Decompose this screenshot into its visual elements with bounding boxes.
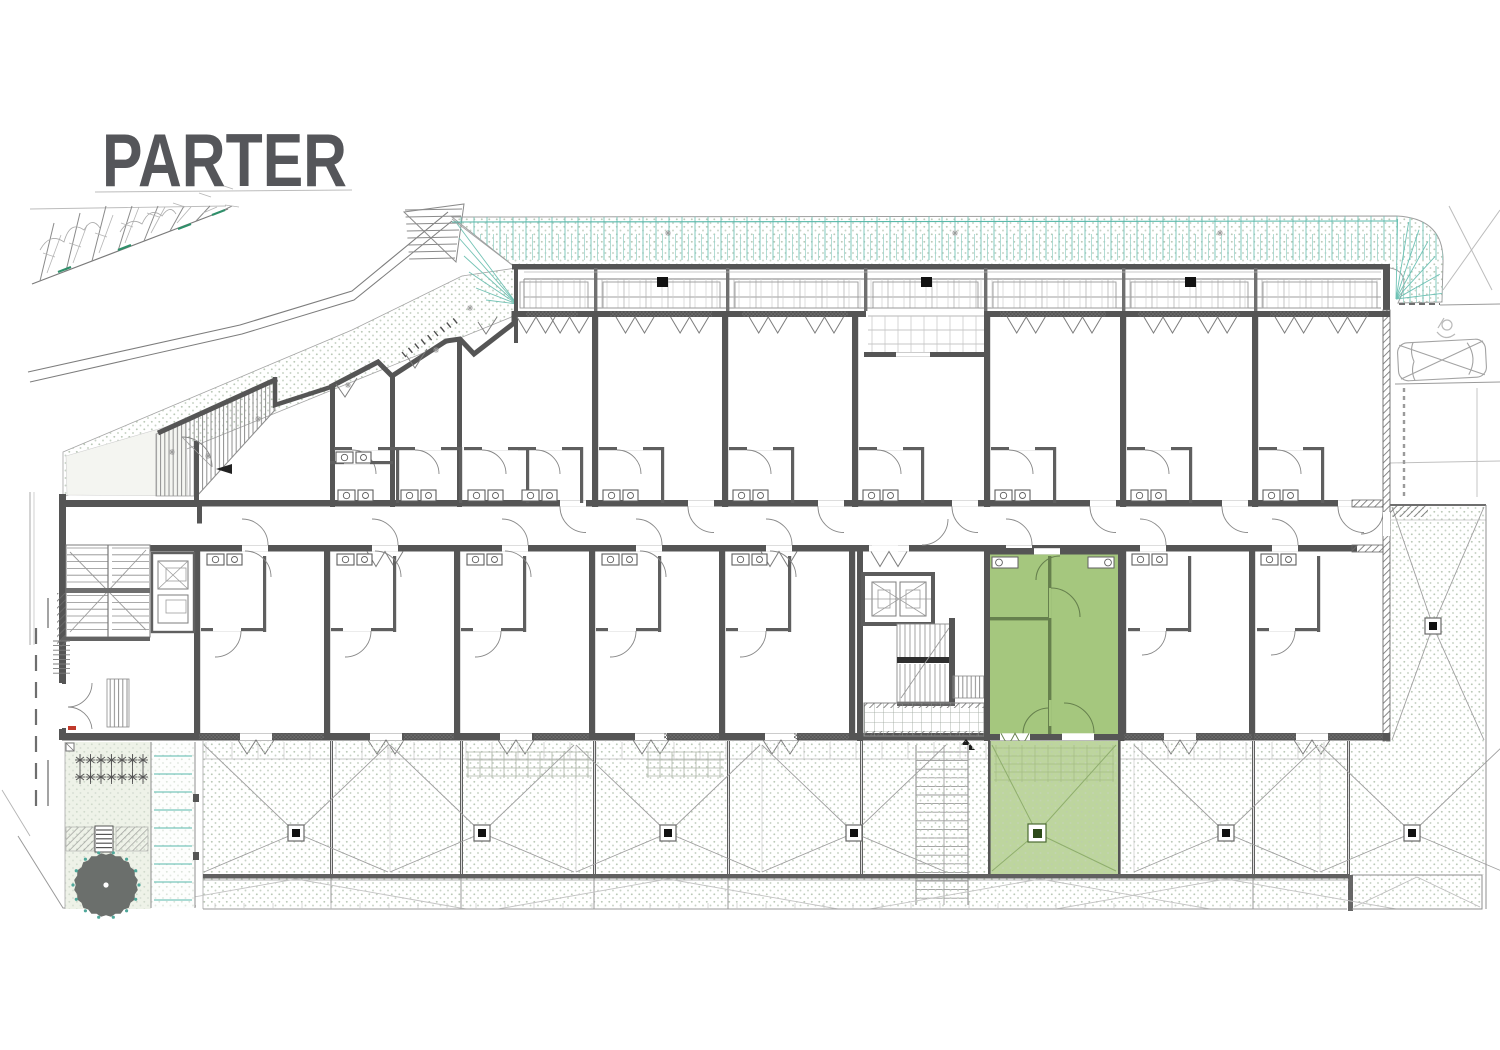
svg-text:PARTER: PARTER	[102, 118, 347, 202]
